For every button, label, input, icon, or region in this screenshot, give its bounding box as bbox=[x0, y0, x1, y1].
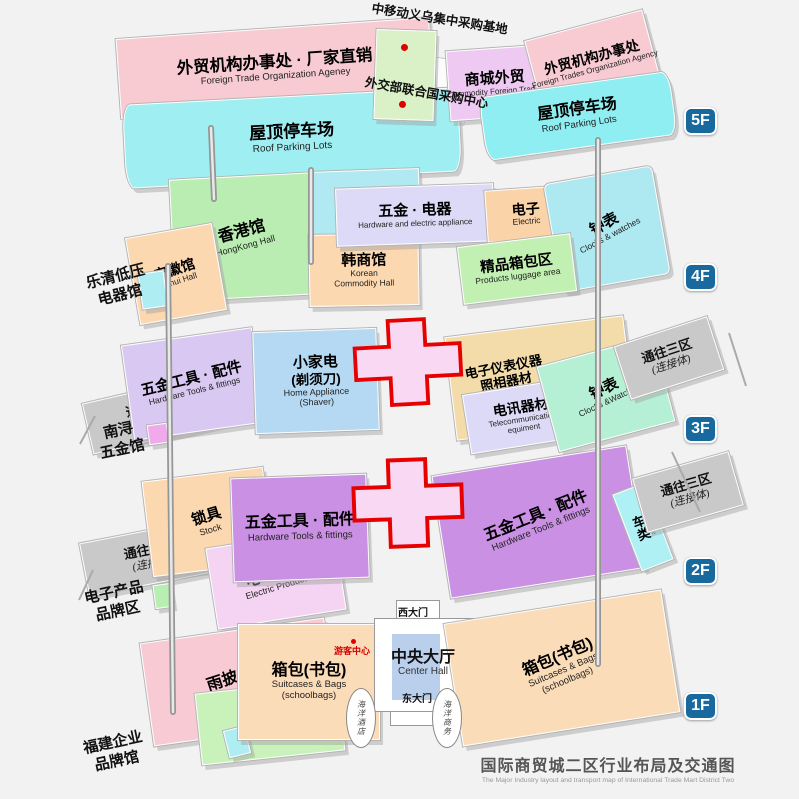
f5-area-procurement-base bbox=[373, 29, 436, 121]
f3-connector-to-district3: 通往三区 (连接体) bbox=[614, 316, 725, 400]
floor-badge-4f: 4F bbox=[684, 263, 717, 291]
f3-cross-connector bbox=[350, 317, 466, 409]
area-label-zh: (剃须刀) bbox=[291, 371, 341, 388]
f1-label-west-gate: 西大门 bbox=[398, 604, 428, 619]
f1-label-east-gate: 东大门 bbox=[402, 690, 432, 705]
floor-badge-3f: 3F bbox=[684, 415, 717, 443]
f1-label-center-hall: 中央大厅 bbox=[374, 648, 472, 668]
f1-area-suitcases-right: 箱包(书包) Suitcases & Bags (schoolbags) bbox=[444, 590, 681, 747]
location-dot bbox=[399, 101, 406, 108]
area-label-en: Electric bbox=[512, 216, 540, 228]
f4-area-products-luggage: 精品箱包区 Products luggage area bbox=[457, 233, 577, 304]
floor-badge-5f: 5F bbox=[684, 107, 717, 135]
f3-area-hardware-tools: 五金工具 · 配件 Hardware Tools & fittings bbox=[121, 327, 265, 440]
area-label-zh: 小家电 bbox=[293, 353, 339, 372]
area-label-en: Hardware Tools & fittings bbox=[248, 530, 353, 545]
f2-sliver-green bbox=[152, 583, 173, 609]
area-label-en: (Shaver) bbox=[299, 397, 334, 409]
f4-area-hardware-electric: 五金 · 电器 Hardware and electric appliance bbox=[335, 183, 495, 246]
map-title: 国际商贸城二区行业布局及交通图 The Major Industry layou… bbox=[478, 752, 738, 784]
ocean-hotel-label: 海洋酒店 bbox=[356, 700, 367, 736]
f2-area-hardware-tools-left: 五金工具 · 配件 Hardware Tools & fittings bbox=[230, 474, 370, 583]
area-label-en: (schoolbags) bbox=[282, 691, 336, 702]
f1-ocean-hotel-bubble: 海洋酒店 bbox=[346, 688, 376, 748]
map-title-en: The Major Industry layout and transport … bbox=[478, 777, 738, 784]
area-label-en: Hardware and electric appliance bbox=[358, 217, 473, 230]
f3-sliver-pink bbox=[147, 423, 170, 446]
f1-ocean-business-bubble: 海洋商务 bbox=[432, 688, 462, 748]
f1-label-center-hall-en: Center Hall bbox=[374, 666, 472, 679]
floor-badge-1f: 1F bbox=[684, 692, 717, 720]
side-label-fujian: 福建企业 品牌馆 bbox=[82, 728, 149, 777]
f2-area-hardware-tools-right: 五金工具 · 配件 Hardware Tools & fittings bbox=[432, 445, 646, 598]
f2-cross-connector bbox=[352, 456, 463, 552]
visitor-center-dot bbox=[351, 639, 356, 644]
f1-label-visitor-center: 游客中心 bbox=[334, 646, 370, 657]
area-label-zh: 箱包(书包) bbox=[272, 662, 347, 680]
side-label-nanxun: 南浔 五金馆 bbox=[95, 418, 147, 464]
floor-badge-2f: 2F bbox=[684, 557, 717, 585]
trade-mart-map: 外贸机构办事处 · 厂家直销 Foreign Trade Organizatio… bbox=[0, 0, 799, 799]
area-label-en: Commodity Hall bbox=[334, 278, 394, 289]
area-label-zh: 韩商馆 bbox=[341, 251, 386, 269]
map-title-zh: 国际商贸城二区行业布局及交通图 bbox=[478, 752, 738, 776]
f2-connector-to-district3: 通往三区 (连接体) bbox=[632, 451, 744, 532]
location-dot bbox=[401, 44, 408, 51]
ocean-business-label: 海洋商务 bbox=[442, 700, 453, 736]
